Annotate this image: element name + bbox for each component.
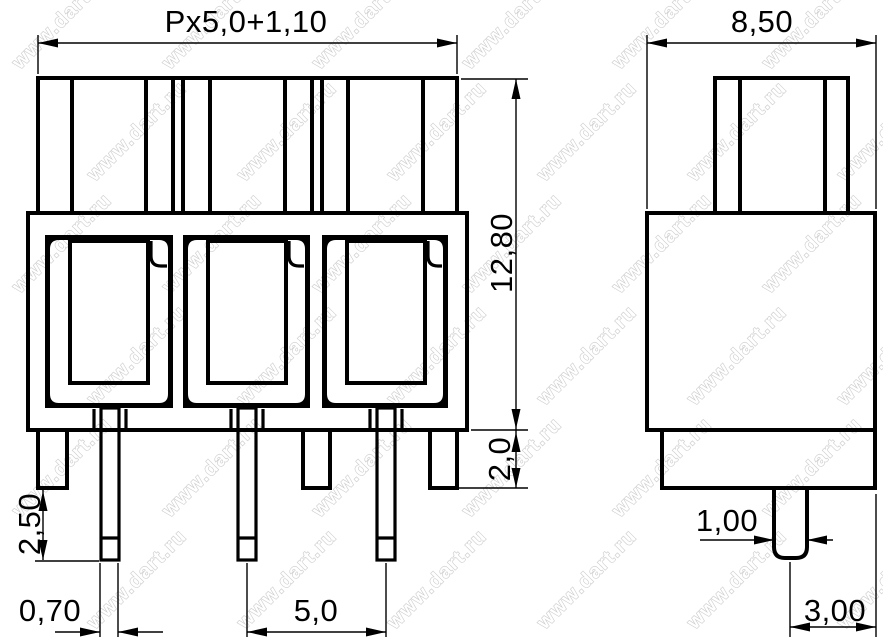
front-stub-right (430, 430, 457, 488)
drawing-canvas: www.dart.ruwww.dart.ruwww.dart.ruwww.dar… (0, 0, 883, 637)
dim-label-body-height: 12,80 (484, 213, 519, 293)
front-view (28, 78, 467, 560)
watermark-text: www.dart.ru (382, 525, 491, 634)
front-channel-1 (151, 241, 167, 266)
front-channel-2 (289, 241, 304, 266)
watermark-text: www.dart.ru (82, 525, 191, 634)
watermark-text: www.dart.ru (457, 0, 566, 74)
watermark-text: www.dart.ru (682, 301, 791, 410)
front-channel-3 (428, 241, 442, 266)
watermark-text: www.dart.ru (532, 77, 641, 186)
watermark-text: www.dart.ru (382, 77, 491, 186)
watermark-text: www.dart.ru (607, 189, 716, 298)
watermark-text: www.dart.ru (607, 0, 716, 74)
dim-label-pin-thickness: 0,70 (19, 593, 81, 628)
dim-label-depth: 8,50 (731, 4, 793, 39)
watermark-text: www.dart.ru (532, 525, 641, 634)
dim-label-pin-width: 1,00 (696, 503, 758, 538)
dim-label-pin-pitch: 5,0 (294, 593, 339, 628)
dim-label-total-width: Px5,0+1,10 (165, 4, 328, 39)
watermark-text: www.dart.ru (7, 189, 116, 298)
watermark-text: www.dart.ru (757, 189, 866, 298)
watermark-text: www.dart.ru (382, 301, 491, 410)
dim-label-pin-protrusion: 2,50 (12, 493, 47, 555)
watermark-text: www.dart.ru (7, 0, 116, 74)
front-stub-middle (303, 430, 330, 488)
dim-label-pin-to-edge: 3,00 (804, 593, 866, 628)
terminal-block-drawing: www.dart.ruwww.dart.ruwww.dart.ruwww.dar… (0, 0, 883, 637)
watermark-text: www.dart.ru (682, 77, 791, 186)
watermark-text: www.dart.ru (82, 77, 191, 186)
watermark-text: www.dart.ru (82, 301, 191, 410)
dim-label-base-height: 2,0 (482, 437, 517, 482)
watermark-text: www.dart.ru (532, 301, 641, 410)
